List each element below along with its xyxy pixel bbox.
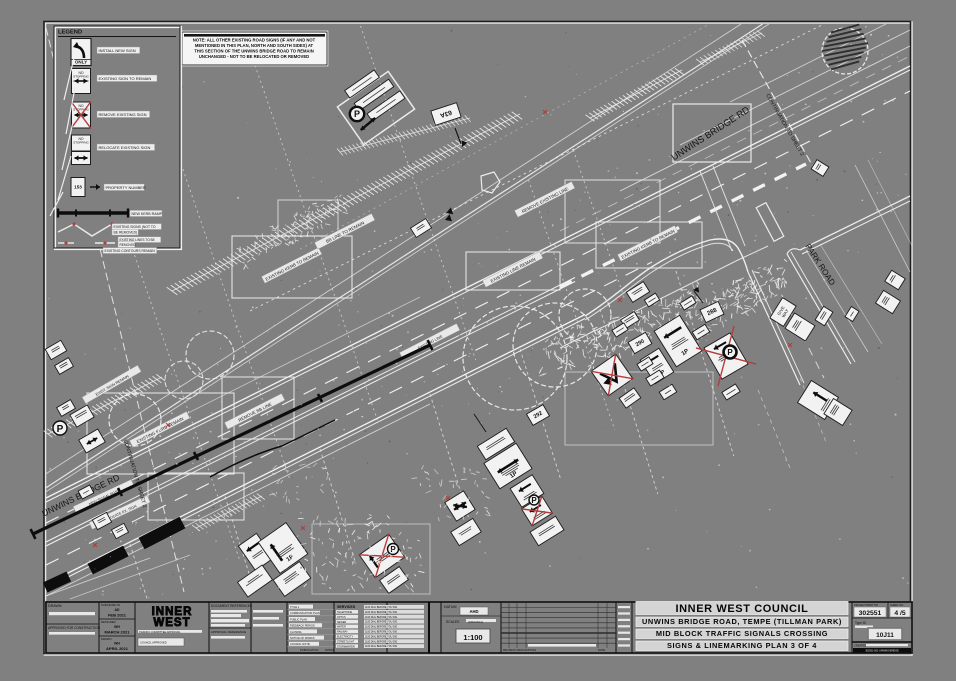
svg-text:PROJECT/PART NO: PROJECT/PART NO xyxy=(854,603,878,607)
svg-text:SEWER: SEWER xyxy=(337,621,346,624)
svg-text:STOPPING: STOPPING xyxy=(73,141,89,145)
svg-text:FEEDBACK PERIOD: FEEDBACK PERIOD xyxy=(290,624,315,628)
svg-text:TRAFFIC COMMITTEE APPROVAL: TRAFFIC COMMITTEE APPROVAL xyxy=(139,630,181,634)
svg-text:REMOVE EXISTING SIGN: REMOVE EXISTING SIGN xyxy=(99,112,147,117)
svg-text:AHD: AHD xyxy=(469,609,478,614)
svg-text:COUNCIL NOTIF.: COUNCIL NOTIF. xyxy=(290,642,311,646)
svg-text:APPROVAL REFERENCE: APPROVAL REFERENCE xyxy=(211,630,246,634)
svg-text:WEST: WEST xyxy=(153,617,190,629)
svg-text:BE REMOVED): BE REMOVED) xyxy=(114,231,138,235)
svg-text:INNER WEST COUNCIL: INNER WEST COUNCIL xyxy=(675,603,808,615)
svg-text:P: P xyxy=(354,109,360,119)
svg-text:COUNCIL APPROVED: COUNCIL APPROVED xyxy=(140,641,167,645)
svg-text:APRIL 2021: APRIL 2021 xyxy=(106,646,129,651)
svg-text:1100 DIAL BEFORE YOU DIG: 1100 DIAL BEFORE YOU DIG xyxy=(365,640,397,643)
svg-text:1100 DIAL BEFORE YOU DIG: 1100 DIAL BEFORE YOU DIG xyxy=(365,645,397,648)
svg-text:302551: 302551 xyxy=(859,610,882,617)
svg-text:1100 DIAL BEFORE YOU DIG: 1100 DIAL BEFORE YOU DIG xyxy=(365,606,397,609)
svg-text:P: P xyxy=(727,348,733,357)
svg-text:DOCUMENT REFERENCES: DOCUMENT REFERENCES xyxy=(211,604,252,608)
svg-text:P: P xyxy=(531,496,537,505)
svg-text:PUBLICATION: PUBLICATION xyxy=(300,648,318,652)
svg-text:DATE: DATE xyxy=(598,648,605,652)
svg-text:MENTIONED IN THIS PLAN, NORTH: MENTIONED IN THIS PLAN, NORTH AND SOUTH … xyxy=(195,43,314,48)
svg-text:REMOVED: REMOVED xyxy=(120,243,137,247)
svg-text:10J11: 10J11 xyxy=(876,632,894,639)
svg-text:OPTUS: OPTUS xyxy=(337,616,346,619)
svg-text:STORMWATER: STORMWATER xyxy=(337,645,355,648)
svg-text:THIS SECTION OF THE UNWINS BRI: THIS SECTION OF THE UNWINS BRIDGE ROAD T… xyxy=(194,49,314,54)
svg-text:UNCHANGED - NOT TO BE RELOCATE: UNCHANGED - NOT TO BE RELOCATED OR REMOV… xyxy=(199,54,309,59)
svg-text:COMMUNICATION PLAN: COMMUNICATION PLAN xyxy=(290,611,320,615)
svg-text:UNWINS BRIDGE ROAD, TEMPE (TIL: UNWINS BRIDGE ROAD, TEMPE (TILLMAN PARK) xyxy=(642,617,842,626)
svg-text:LEGEND: LEGEND xyxy=(58,30,82,36)
svg-text:RELOCATE EXISTING SIGN: RELOCATE EXISTING SIGN xyxy=(99,145,151,150)
svg-text:1100 DIAL BEFORE YOU DIG: 1100 DIAL BEFORE YOU DIG xyxy=(365,626,397,629)
svg-text:SHEET NO: SHEET NO xyxy=(890,603,903,607)
svg-text:SIGNS & LINEMARKING PLAN 3 OF: SIGNS & LINEMARKING PLAN 3 OF 4 xyxy=(667,641,817,650)
svg-text:WATER: WATER xyxy=(337,626,346,629)
svg-text:PUBLIC PLAN: PUBLIC PLAN xyxy=(290,617,307,621)
svg-text:1100 DIAL BEFORE YOU DIG: 1100 DIAL BEFORE YOU DIG xyxy=(365,635,397,638)
svg-text:EXISTING CONTOURS REMAIN: EXISTING CONTOURS REMAIN xyxy=(105,249,156,253)
svg-text:EXISTING SIGNS (NOT TO: EXISTING SIGNS (NOT TO xyxy=(114,225,156,229)
svg-text:1:100: 1:100 xyxy=(463,633,482,642)
svg-text:TELEPHONE: TELEPHONE xyxy=(337,611,352,614)
svg-text:NEW KERB RAMP: NEW KERB RAMP xyxy=(132,212,163,216)
svg-text:EXISTING LINES TO BE: EXISTING LINES TO BE xyxy=(120,238,155,242)
svg-text:1100 DIAL BEFORE YOU DIG: 1100 DIAL BEFORE YOU DIG xyxy=(365,616,397,619)
svg-text:WH: WH xyxy=(114,642,120,646)
svg-text:TITLE 1: TITLE 1 xyxy=(290,605,300,609)
svg-text:WH: WH xyxy=(114,625,120,629)
svg-text:SURVEYED IN: SURVEYED IN xyxy=(101,603,120,607)
svg-text:(ORIGINAL): (ORIGINAL) xyxy=(468,620,483,624)
svg-text:DRAWN: DRAWN xyxy=(101,637,111,641)
svg-text:153: 153 xyxy=(74,185,82,190)
svg-text:AD: AD xyxy=(115,608,120,612)
svg-text:STREETLIGHT: STREETLIGHT xyxy=(337,640,355,643)
svg-text:MID BLOCK TRAFFIC SIGNALS CROS: MID BLOCK TRAFFIC SIGNALS CROSSING xyxy=(656,629,828,638)
svg-text:NOTICE OF WORKS: NOTICE OF WORKS xyxy=(290,636,315,640)
svg-text:MARCH 2021: MARCH 2021 xyxy=(105,630,131,635)
svg-text:FEB 2021: FEB 2021 xyxy=(108,613,127,618)
svg-text:P: P xyxy=(57,424,64,435)
svg-text:DESIGNED: DESIGNED xyxy=(101,620,116,624)
svg-text:1100 DIAL BEFORE YOU DIG: 1100 DIAL BEFORE YOU DIG xyxy=(365,631,397,634)
svg-text:APPROVED FOR CONSTRUCTION: APPROVED FOR CONSTRUCTION xyxy=(48,626,101,630)
svg-text:EXISTING SIGN TO REMAIN: EXISTING SIGN TO REMAIN xyxy=(99,76,152,81)
svg-text:1100 DIAL BEFORE YOU DIG: 1100 DIAL BEFORE YOU DIG xyxy=(365,621,397,624)
svg-text:302551-S01-UNWINS BRIDGE: 302551-S01-UNWINS BRIDGE xyxy=(865,649,899,652)
svg-text:SCALES: SCALES xyxy=(446,620,460,624)
svg-text:CLOSING: CLOSING xyxy=(290,630,302,634)
svg-text:ONLY: ONLY xyxy=(75,60,87,65)
svg-text:CREATED: CREATED xyxy=(854,644,866,648)
svg-text:RAILWAY: RAILWAY xyxy=(337,631,348,634)
svg-text:4 /5: 4 /5 xyxy=(894,610,906,617)
svg-text:SERVICES: SERVICES xyxy=(337,605,356,609)
svg-text:STOPPING: STOPPING xyxy=(73,75,89,79)
svg-text:Type ID: Type ID xyxy=(855,621,867,625)
svg-text:DATES: DATES xyxy=(325,648,334,652)
svg-text:DATUM: DATUM xyxy=(444,605,457,609)
svg-text:DRAWN: DRAWN xyxy=(48,604,62,608)
svg-text:PROPERTY NUMBER: PROPERTY NUMBER xyxy=(106,185,146,190)
svg-text:ELECTRICITY: ELECTRICITY xyxy=(337,636,354,639)
svg-text:NOTE: ALL OTHER EXISTING ROAD: NOTE: ALL OTHER EXISTING ROAD SIGNS (IF … xyxy=(193,38,316,43)
svg-text:REVISION DESCRIPTION: REVISION DESCRIPTION xyxy=(503,648,536,652)
svg-text:INSTALL NEW SIGN: INSTALL NEW SIGN xyxy=(99,48,136,53)
svg-text:1100 DIAL BEFORE YOU DIG: 1100 DIAL BEFORE YOU DIG xyxy=(365,611,397,614)
